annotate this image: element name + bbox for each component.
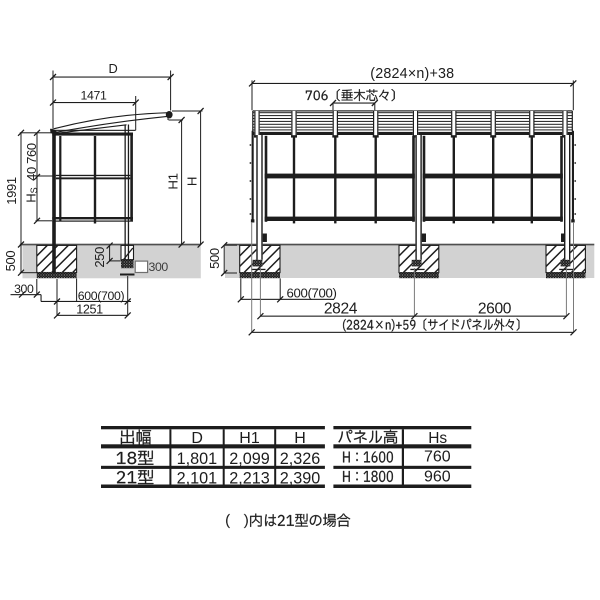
svg-text:2,099: 2,099 <box>229 450 270 468</box>
svg-text:760: 760 <box>424 449 451 466</box>
svg-text:500: 500 <box>3 251 18 272</box>
svg-text:H: H <box>184 177 199 186</box>
svg-text:2,101: 2,101 <box>177 469 218 487</box>
svg-text:2,326: 2,326 <box>280 450 321 468</box>
svg-text:H: H <box>294 430 306 447</box>
svg-text:2,390: 2,390 <box>280 469 321 487</box>
svg-text:1471: 1471 <box>81 89 107 103</box>
svg-text:(2824×n)+38: (2824×n)+38 <box>370 66 454 82</box>
svg-text:300: 300 <box>14 282 34 296</box>
svg-text:300: 300 <box>148 260 168 274</box>
svg-text:960: 960 <box>424 468 451 485</box>
svg-text:250: 250 <box>92 247 107 268</box>
svg-text:600(700): 600(700) <box>78 289 125 303</box>
svg-text:1251: 1251 <box>76 302 103 316</box>
svg-text:D: D <box>191 430 203 447</box>
svg-text:D: D <box>108 61 117 76</box>
svg-text:40: 40 <box>24 167 39 181</box>
svg-text:1991: 1991 <box>4 177 19 205</box>
svg-text:H1: H1 <box>239 430 260 447</box>
svg-text:H1: H1 <box>165 173 180 189</box>
svg-text:1,801: 1,801 <box>177 450 218 468</box>
svg-text:600(700): 600(700) <box>287 285 337 300</box>
svg-text:760: 760 <box>24 143 39 164</box>
svg-text:2824: 2824 <box>324 301 358 318</box>
svg-text:500: 500 <box>207 248 222 269</box>
svg-text:2600: 2600 <box>478 301 512 318</box>
svg-text:2,213: 2,213 <box>229 469 270 487</box>
svg-text:Hs: Hs <box>428 430 447 447</box>
